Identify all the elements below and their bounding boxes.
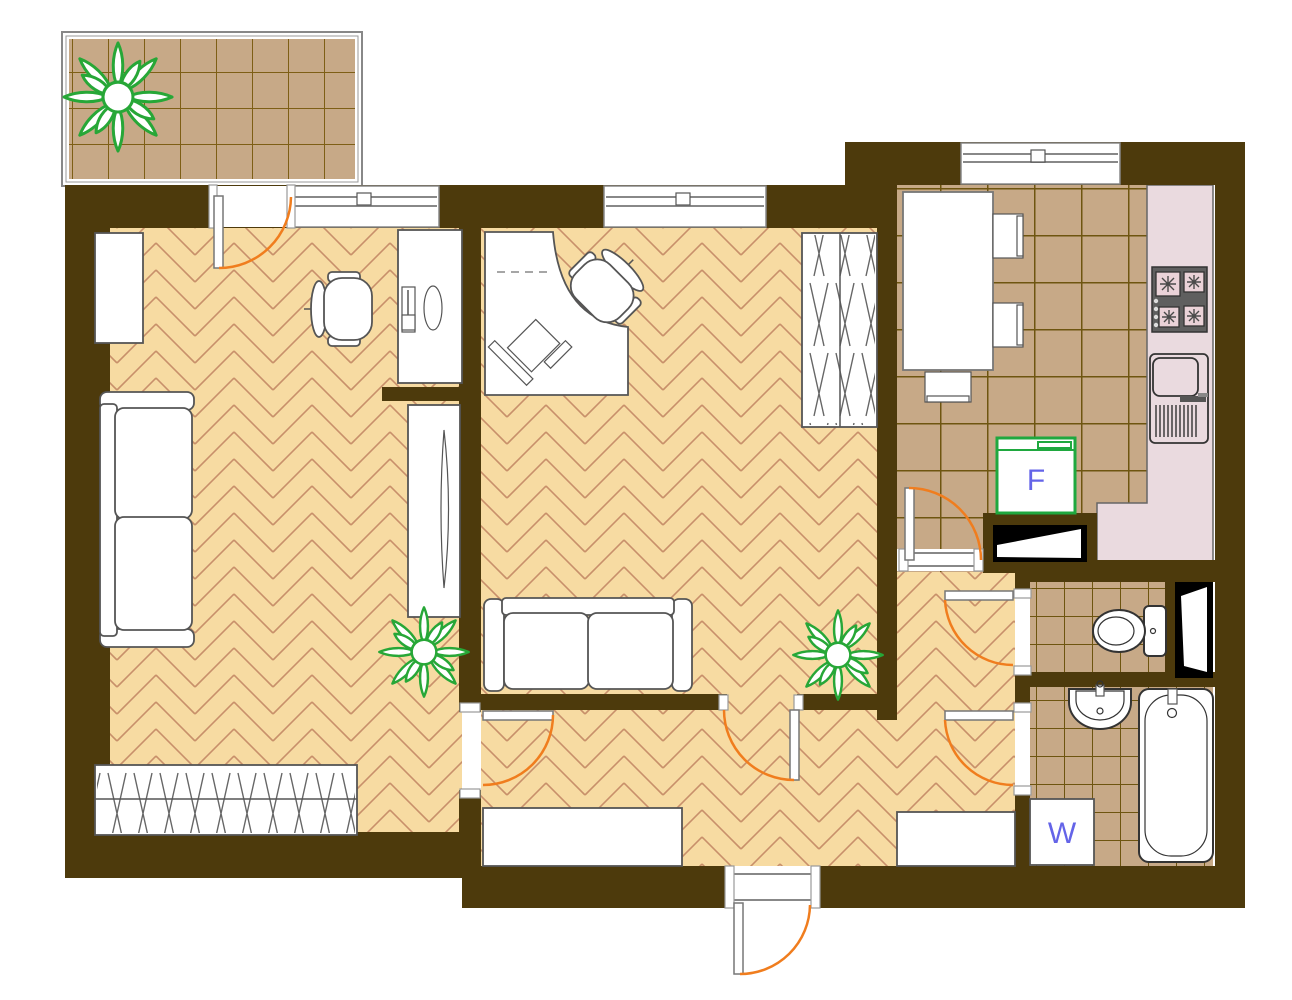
wardrobe bbox=[95, 765, 357, 835]
dining-chair bbox=[925, 372, 971, 402]
door-leaf bbox=[483, 711, 553, 720]
dining-table bbox=[903, 192, 993, 370]
washbasin-icon bbox=[1069, 681, 1131, 729]
sofa bbox=[100, 392, 194, 647]
toilet-icon bbox=[1093, 606, 1166, 656]
floor-plan: F W bbox=[0, 0, 1292, 1000]
door-leaf bbox=[945, 591, 1013, 600]
plant-icon bbox=[379, 607, 468, 696]
dining-chair bbox=[993, 214, 1023, 258]
door-leaf bbox=[905, 488, 914, 560]
washer-label: W bbox=[1048, 817, 1077, 850]
wardrobe bbox=[802, 233, 877, 427]
kitchen-window bbox=[961, 143, 1120, 184]
sofa bbox=[484, 598, 692, 691]
door-leaf bbox=[734, 903, 743, 974]
balcony-door-opening bbox=[213, 186, 289, 227]
gas-stove-icon bbox=[1152, 267, 1207, 332]
plant-icon bbox=[793, 610, 882, 699]
vent-shaft bbox=[993, 525, 1087, 562]
door-leaf bbox=[945, 711, 1013, 720]
dining-chair bbox=[993, 303, 1023, 347]
tv-cabinet bbox=[408, 405, 460, 617]
plant-icon bbox=[64, 43, 172, 151]
cabinet bbox=[95, 233, 143, 343]
bathtub-icon bbox=[1139, 689, 1213, 862]
wc bbox=[1093, 606, 1166, 656]
vent-shaft bbox=[1175, 582, 1213, 678]
balcony bbox=[62, 32, 362, 186]
hallway-cabinet bbox=[897, 812, 1015, 866]
washing-machine: W bbox=[1030, 799, 1094, 865]
door-leaf bbox=[214, 196, 223, 268]
door-swing-arc bbox=[740, 905, 810, 974]
fridge: F bbox=[997, 438, 1075, 513]
bedroom-window bbox=[604, 186, 766, 227]
fridge-label: F bbox=[1027, 464, 1045, 497]
living-room-window bbox=[291, 186, 439, 227]
hallway-cabinet bbox=[483, 808, 682, 866]
door-leaf bbox=[790, 710, 799, 780]
